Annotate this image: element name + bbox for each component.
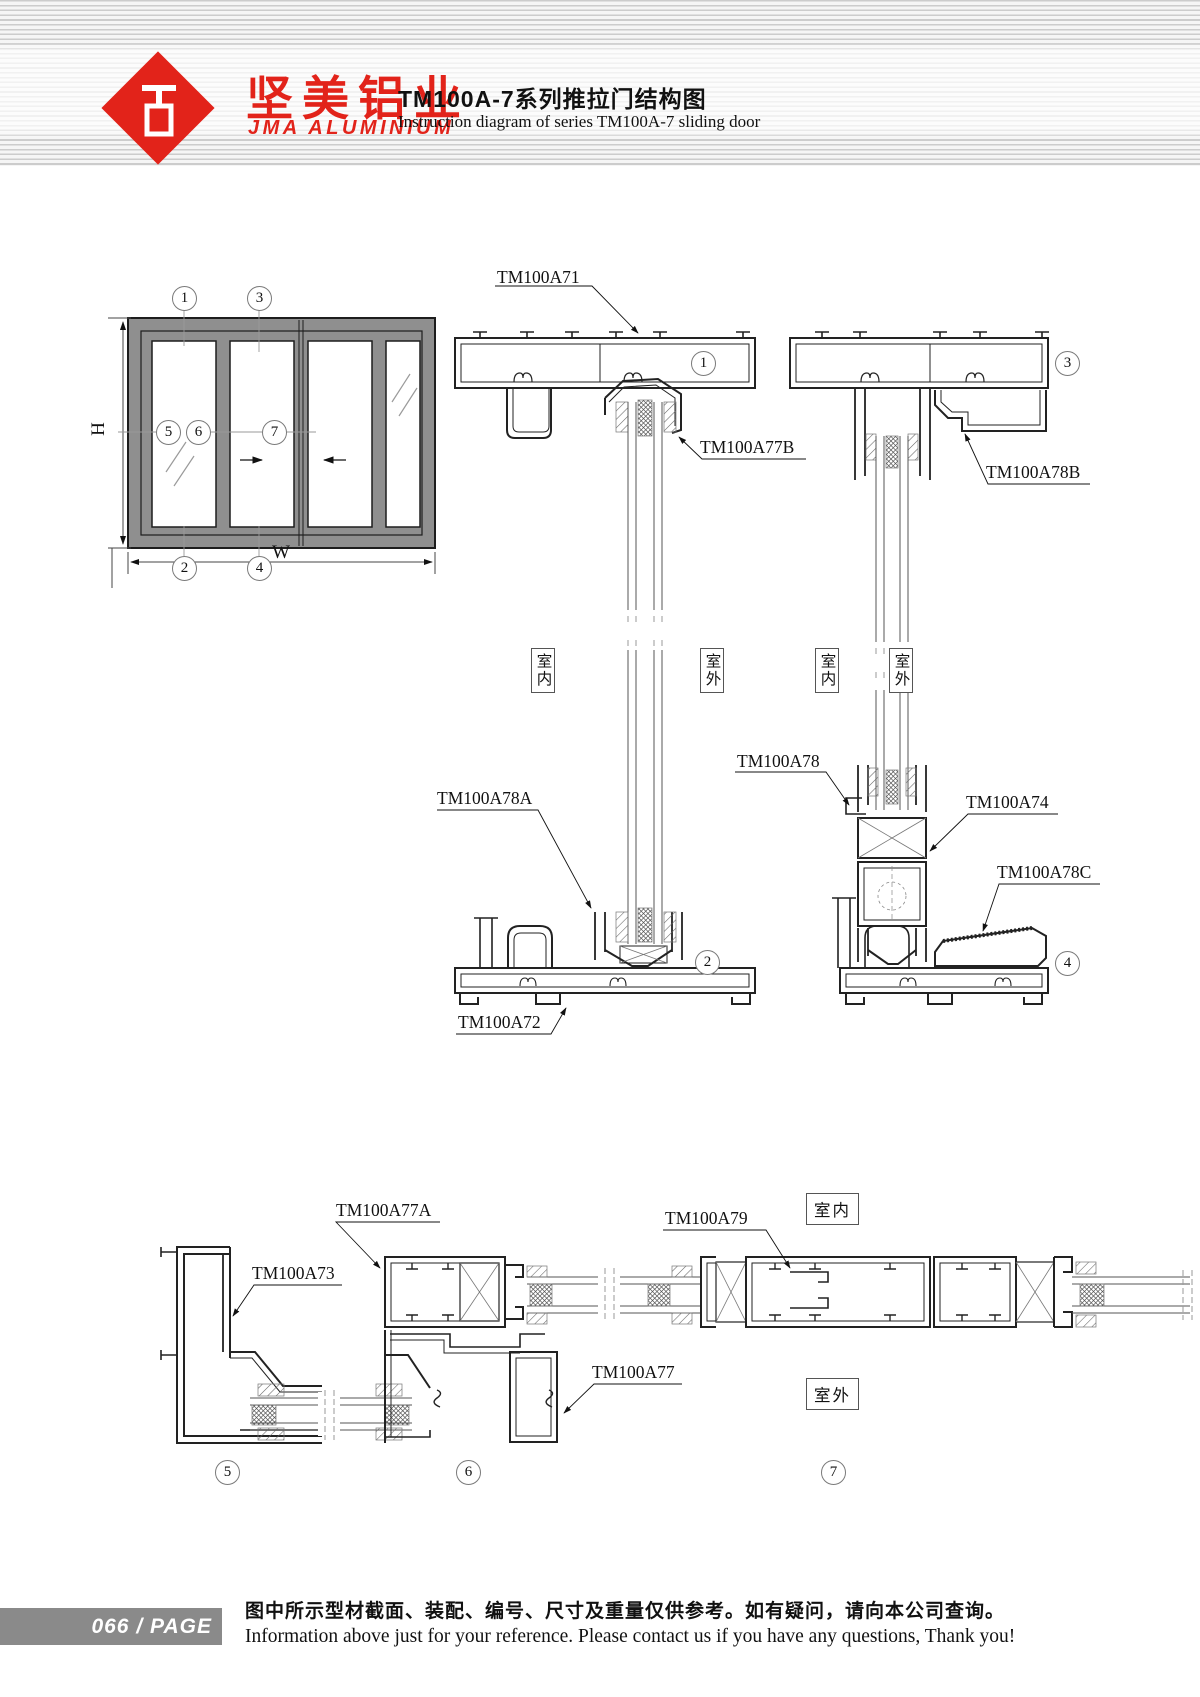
part-label-tm100a78: TM100A78 bbox=[737, 751, 820, 772]
part-label-tm100a74: TM100A74 bbox=[966, 792, 1049, 813]
env-label-indoor: 室内 bbox=[806, 1193, 859, 1225]
part-label-tm100a78a: TM100A78A bbox=[437, 788, 532, 809]
glass-run-bottom-right bbox=[1072, 1262, 1192, 1327]
section-callout-1: 1 bbox=[691, 351, 716, 376]
env-label-outdoor: 室外 bbox=[806, 1378, 859, 1410]
drawing-linework bbox=[0, 0, 1200, 1697]
part-label-tm100a77a: TM100A77A bbox=[336, 1200, 431, 1221]
callout-2: 2 bbox=[172, 556, 197, 581]
glass-run-bottom-left bbox=[250, 1384, 412, 1440]
section-callout-5: 5 bbox=[215, 1460, 240, 1485]
footer-note-en: Information above just for your referenc… bbox=[245, 1626, 1015, 1648]
callout-3: 3 bbox=[247, 286, 272, 311]
glass-mid-column bbox=[628, 402, 662, 944]
section-3-drawing bbox=[790, 332, 1049, 480]
section-callout-6: 6 bbox=[456, 1460, 481, 1485]
footer-note-cn: 图中所示型材截面、装配、编号、尺寸及重量仅供参考。如有疑问，请向本公司查询。 bbox=[245, 1596, 1005, 1623]
section-callout-4: 4 bbox=[1055, 951, 1080, 976]
env-label-indoor: 室内 bbox=[815, 648, 839, 693]
part-label-tm100a79: TM100A79 bbox=[665, 1208, 748, 1229]
callout-5: 5 bbox=[156, 420, 181, 445]
section-4-sash-drawing bbox=[846, 765, 926, 964]
part-label-tm100a77b: TM100A77B bbox=[700, 437, 794, 458]
callout-6: 6 bbox=[186, 420, 211, 445]
page-separator: / bbox=[136, 1615, 143, 1638]
section-7-drawing bbox=[701, 1257, 1072, 1327]
env-label-indoor: 室内 bbox=[531, 648, 555, 693]
callout-7: 7 bbox=[262, 420, 287, 445]
env-label-outdoor: 室外 bbox=[889, 648, 913, 693]
glass-right-column bbox=[876, 436, 908, 810]
technical-drawing: H W TM100A71 TM100A77B TM100A78B TM100A7… bbox=[0, 0, 1200, 1697]
page-label: PAGE bbox=[150, 1615, 212, 1638]
callout-4: 4 bbox=[247, 556, 272, 581]
part-label-tm100a71: TM100A71 bbox=[497, 267, 580, 288]
part-label-tm100a72: TM100A72 bbox=[458, 1012, 541, 1033]
callout-1: 1 bbox=[172, 286, 197, 311]
page-number-block: 066 / PAGE bbox=[0, 1608, 222, 1645]
part-label-tm100a78c: TM100A78C bbox=[997, 862, 1091, 883]
part-label-tm100a73: TM100A73 bbox=[252, 1263, 335, 1284]
dimension-width-label: W bbox=[272, 542, 290, 564]
env-label-outdoor: 室外 bbox=[700, 648, 724, 693]
section-1-drawing bbox=[455, 332, 755, 438]
page-number: 066 bbox=[91, 1615, 129, 1638]
section-callout-7: 7 bbox=[821, 1460, 846, 1485]
section-callout-2: 2 bbox=[695, 950, 720, 975]
part-label-tm100a77: TM100A77 bbox=[592, 1362, 675, 1383]
part-label-tm100a78b: TM100A78B bbox=[986, 462, 1080, 483]
section-callout-3: 3 bbox=[1055, 351, 1080, 376]
glass-run-bottom-mid bbox=[527, 1266, 700, 1324]
dimension-height-label: H bbox=[88, 422, 110, 436]
